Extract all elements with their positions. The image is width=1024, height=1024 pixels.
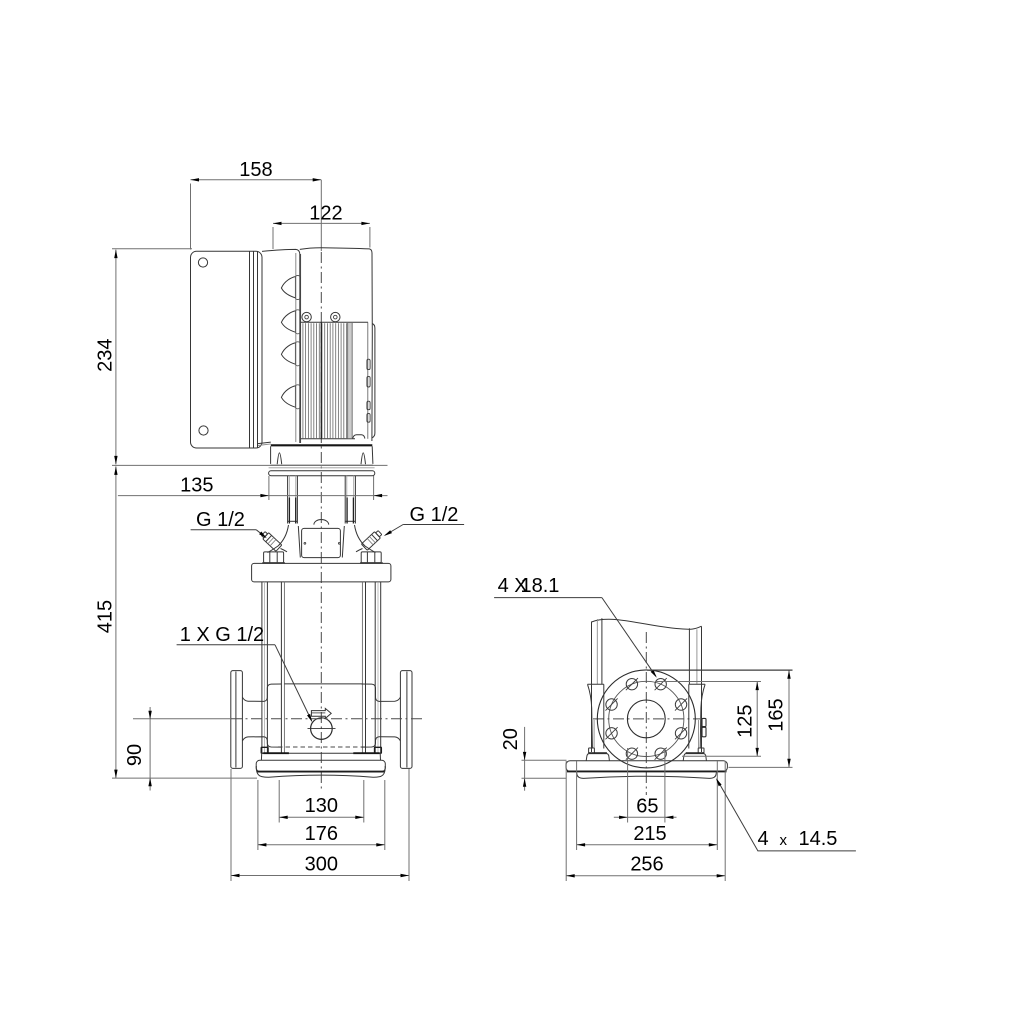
svg-text:165: 165 bbox=[766, 698, 788, 731]
svg-text:415: 415 bbox=[95, 600, 117, 633]
svg-text:G 1/2: G 1/2 bbox=[196, 509, 245, 531]
svg-text:14.5: 14.5 bbox=[799, 828, 838, 850]
svg-text:1 X G 1/2: 1 X G 1/2 bbox=[180, 624, 265, 646]
svg-text:20: 20 bbox=[500, 728, 522, 750]
svg-text:256: 256 bbox=[630, 854, 663, 876]
svg-text:300: 300 bbox=[305, 854, 338, 876]
svg-text:130: 130 bbox=[305, 795, 338, 817]
svg-text:176: 176 bbox=[305, 823, 338, 845]
svg-text:215: 215 bbox=[633, 823, 666, 845]
svg-text:4: 4 bbox=[758, 828, 769, 850]
svg-text:125: 125 bbox=[735, 705, 757, 738]
svg-text:234: 234 bbox=[95, 339, 117, 372]
svg-text:158: 158 bbox=[239, 159, 272, 181]
svg-text:122: 122 bbox=[309, 203, 342, 225]
svg-text:G 1/2: G 1/2 bbox=[410, 504, 459, 526]
svg-text:x: x bbox=[780, 832, 788, 849]
svg-text:90: 90 bbox=[124, 744, 146, 766]
svg-text:135: 135 bbox=[180, 475, 213, 497]
svg-text:18.1: 18.1 bbox=[521, 575, 560, 597]
svg-text:65: 65 bbox=[636, 796, 658, 818]
